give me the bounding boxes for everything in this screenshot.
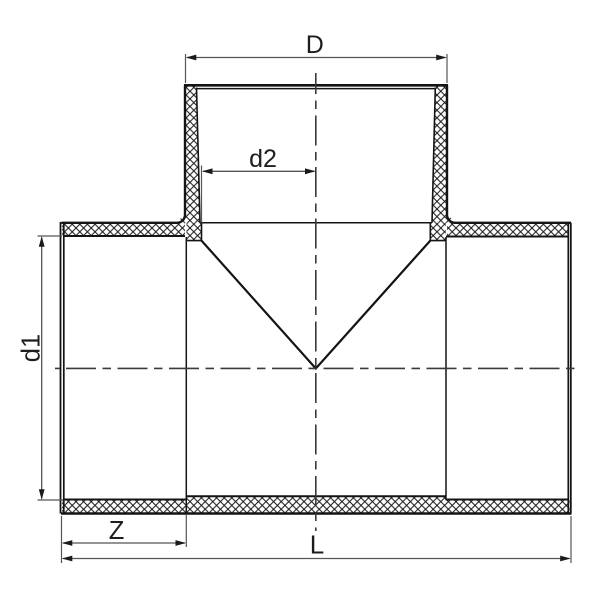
svg-text:L: L (310, 530, 324, 560)
svg-text:D: D (306, 31, 324, 59)
svg-text:d2: d2 (249, 145, 277, 173)
svg-text:d1: d1 (18, 334, 46, 362)
svg-text:Z: Z (109, 517, 125, 545)
